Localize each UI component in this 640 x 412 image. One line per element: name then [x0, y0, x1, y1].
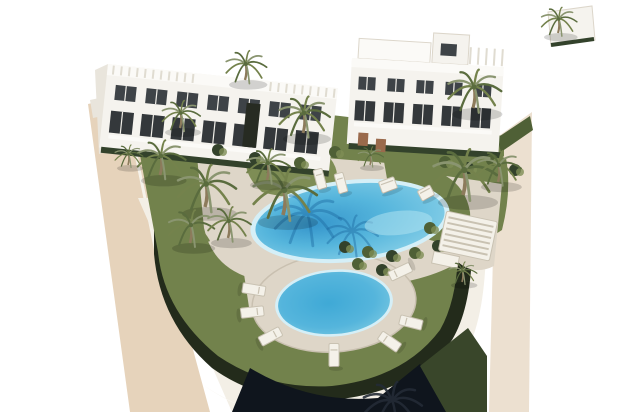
- palm-crown: [203, 181, 209, 187]
- roof-pergola-grid: [137, 68, 138, 77]
- palm-crown: [159, 154, 164, 159]
- palm-crown: [189, 223, 194, 228]
- lounger-bed: [329, 344, 339, 367]
- palm-crown: [127, 153, 130, 156]
- palm-crown: [179, 111, 183, 115]
- roof-pergola-grid: [494, 49, 495, 66]
- rooftop-opening: [440, 43, 457, 56]
- window-mullion: [367, 77, 368, 90]
- palm-crown: [471, 84, 476, 89]
- roof-pergola-grid: [192, 74, 193, 83]
- window-mullion: [396, 79, 397, 92]
- window-mullion: [424, 81, 425, 94]
- lounger-bed: [240, 306, 264, 318]
- palm-crown: [302, 111, 307, 116]
- roof-pergola-grid: [318, 87, 319, 96]
- palm-crown: [244, 62, 248, 66]
- palm-crown: [369, 154, 372, 157]
- roof-pergola-grid: [145, 69, 146, 78]
- roof-pergola-grid: [294, 85, 295, 94]
- roof-pergola-grid: [302, 85, 303, 94]
- roof-pergola-grid: [161, 71, 162, 80]
- architectural-rendering: [0, 0, 640, 412]
- roof-pergola-grid: [278, 83, 279, 92]
- bush: [336, 150, 344, 158]
- palm-crown: [557, 17, 561, 21]
- roof-pergola-grid: [286, 84, 287, 93]
- roof-pergola-grid: [113, 66, 114, 75]
- bush: [416, 251, 424, 259]
- roof-pergola-grid: [326, 88, 327, 97]
- roof-pergola-grid: [334, 89, 335, 98]
- bush: [346, 245, 354, 253]
- roof-pergola-grid: [177, 72, 178, 81]
- palm-crown: [266, 161, 270, 165]
- palm-crown: [461, 270, 464, 273]
- lounger-shadow: [329, 366, 343, 371]
- roof-pergola-grid: [121, 66, 122, 75]
- roof-pergola-grid: [185, 73, 186, 82]
- roof-pergola-grid: [169, 71, 170, 80]
- bush: [301, 161, 309, 169]
- roof-pergola-grid: [502, 49, 503, 66]
- bush: [359, 262, 367, 270]
- palm-crown: [497, 163, 501, 167]
- bush: [219, 148, 227, 156]
- palm-crown: [461, 167, 467, 173]
- roof-pergola-grid: [486, 48, 487, 65]
- palm-tree: [226, 51, 267, 90]
- lounger-pillow: [257, 308, 258, 315]
- bush: [369, 250, 377, 258]
- building-right: [346, 28, 507, 159]
- palm-crown: [227, 219, 231, 223]
- roof-pergola-grid: [470, 47, 471, 64]
- roof-pergola-grid: [153, 70, 154, 79]
- roof-pergola-grid: [478, 48, 479, 65]
- roof-pergola-grid: [129, 67, 130, 76]
- bush: [431, 226, 439, 234]
- roof-pergola-grid: [310, 86, 311, 95]
- roof-pergola-grid: [270, 82, 271, 91]
- bush: [393, 254, 401, 262]
- bush: [516, 168, 524, 176]
- frond: [235, 53, 245, 64]
- rendering-canvas: [0, 0, 640, 412]
- wood-gate: [358, 133, 369, 147]
